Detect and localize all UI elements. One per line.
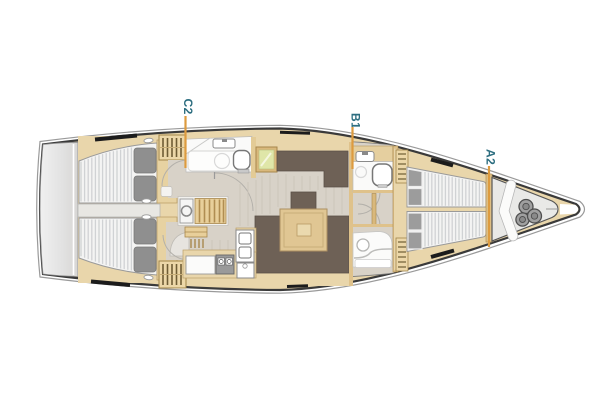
svg-text:A2: A2 xyxy=(484,149,498,165)
svg-text:C2: C2 xyxy=(181,99,195,115)
svg-text:B1: B1 xyxy=(349,113,363,129)
